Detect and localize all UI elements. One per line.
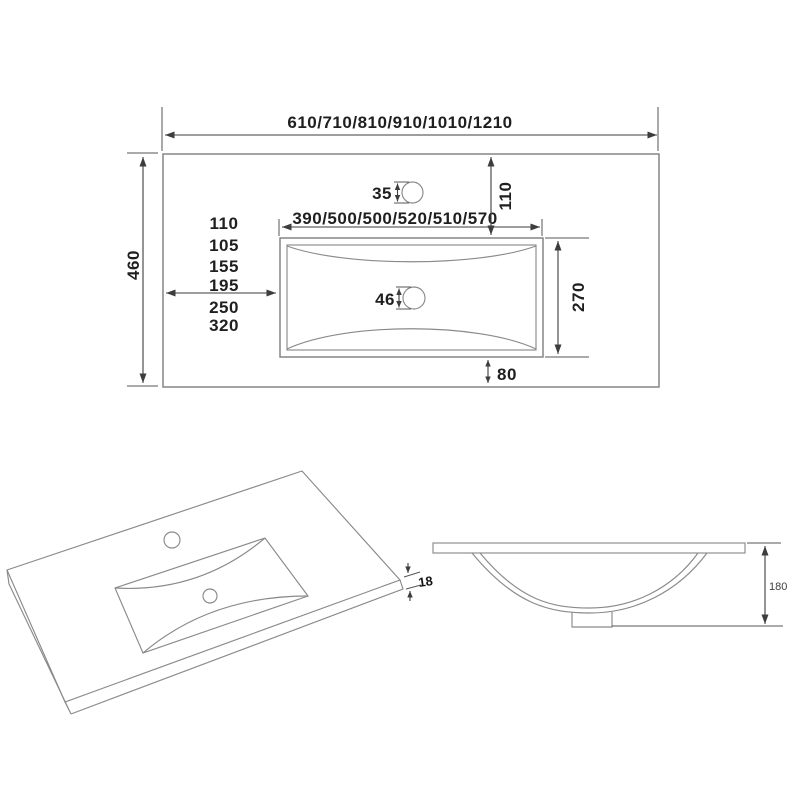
section-view: 180 xyxy=(433,543,787,627)
faucet-setback-label: 110 xyxy=(496,182,515,211)
left-offset-label: 110 xyxy=(210,214,239,233)
basin-rim-outer xyxy=(280,238,543,357)
bowl-inner-curve xyxy=(480,553,698,608)
basin-outline xyxy=(280,238,543,357)
left-offset-label: 250 xyxy=(209,298,239,317)
overall-width-label: 610/710/810/910/1010/1210 xyxy=(287,113,512,132)
drain-hole xyxy=(203,589,217,603)
drain-stub xyxy=(572,612,612,627)
rear-gap-label: 80 xyxy=(497,365,517,384)
bowl-depth-dimension: 180 xyxy=(747,543,787,624)
left-offset-label: 195 xyxy=(209,276,239,295)
overall-width-dimension: 610/710/810/910/1010/1210 xyxy=(162,107,658,151)
basin-front-wall-curve xyxy=(287,329,536,349)
basin-rim-inner xyxy=(287,245,536,350)
thickness-label: 18 xyxy=(417,573,433,590)
basin-back-wall-curve xyxy=(287,246,536,262)
drain-hole-group: 46 xyxy=(375,287,425,309)
drain-hole-dia-label: 46 xyxy=(375,290,395,309)
bowl-outer-curve xyxy=(472,553,707,613)
basin-depth-label: 270 xyxy=(569,282,588,312)
slab-top-face xyxy=(7,471,400,702)
slab-section xyxy=(433,543,745,553)
faucet-hole xyxy=(402,182,423,203)
left-offset-label: 155 xyxy=(209,257,239,276)
faucet-hole-group: 35 xyxy=(372,182,423,203)
overall-depth-label: 460 xyxy=(124,250,143,280)
left-offset-label: 105 xyxy=(209,236,239,255)
faucet-hole xyxy=(164,532,180,548)
overall-depth-dimension: 460 xyxy=(124,153,158,386)
plan-view: 610/710/810/910/1010/1210 460 390/500/50… xyxy=(124,107,659,387)
bowl-depth-label: 180 xyxy=(769,581,787,593)
basin-width-label: 390/500/500/520/510/570 xyxy=(292,209,497,228)
rear-gap-dimension: 80 xyxy=(488,360,517,384)
left-offset-label: 320 xyxy=(209,316,239,335)
basin-depth-dimension: 270 xyxy=(545,238,589,357)
thickness-dimension: 18 xyxy=(404,563,434,601)
left-offset-dimension: 110 105 155 195 250 320 xyxy=(166,214,276,335)
sink-dimension-drawing: 610/710/810/910/1010/1210 460 390/500/50… xyxy=(0,0,800,800)
basin-width-dimension: 390/500/500/520/510/570 xyxy=(279,209,542,236)
drain-hole xyxy=(403,287,425,309)
faucet-hole-dia-label: 35 xyxy=(372,184,392,203)
technical-drawing-page: 610/710/810/910/1010/1210 460 390/500/50… xyxy=(0,0,800,800)
perspective-view: 18 xyxy=(7,471,434,714)
